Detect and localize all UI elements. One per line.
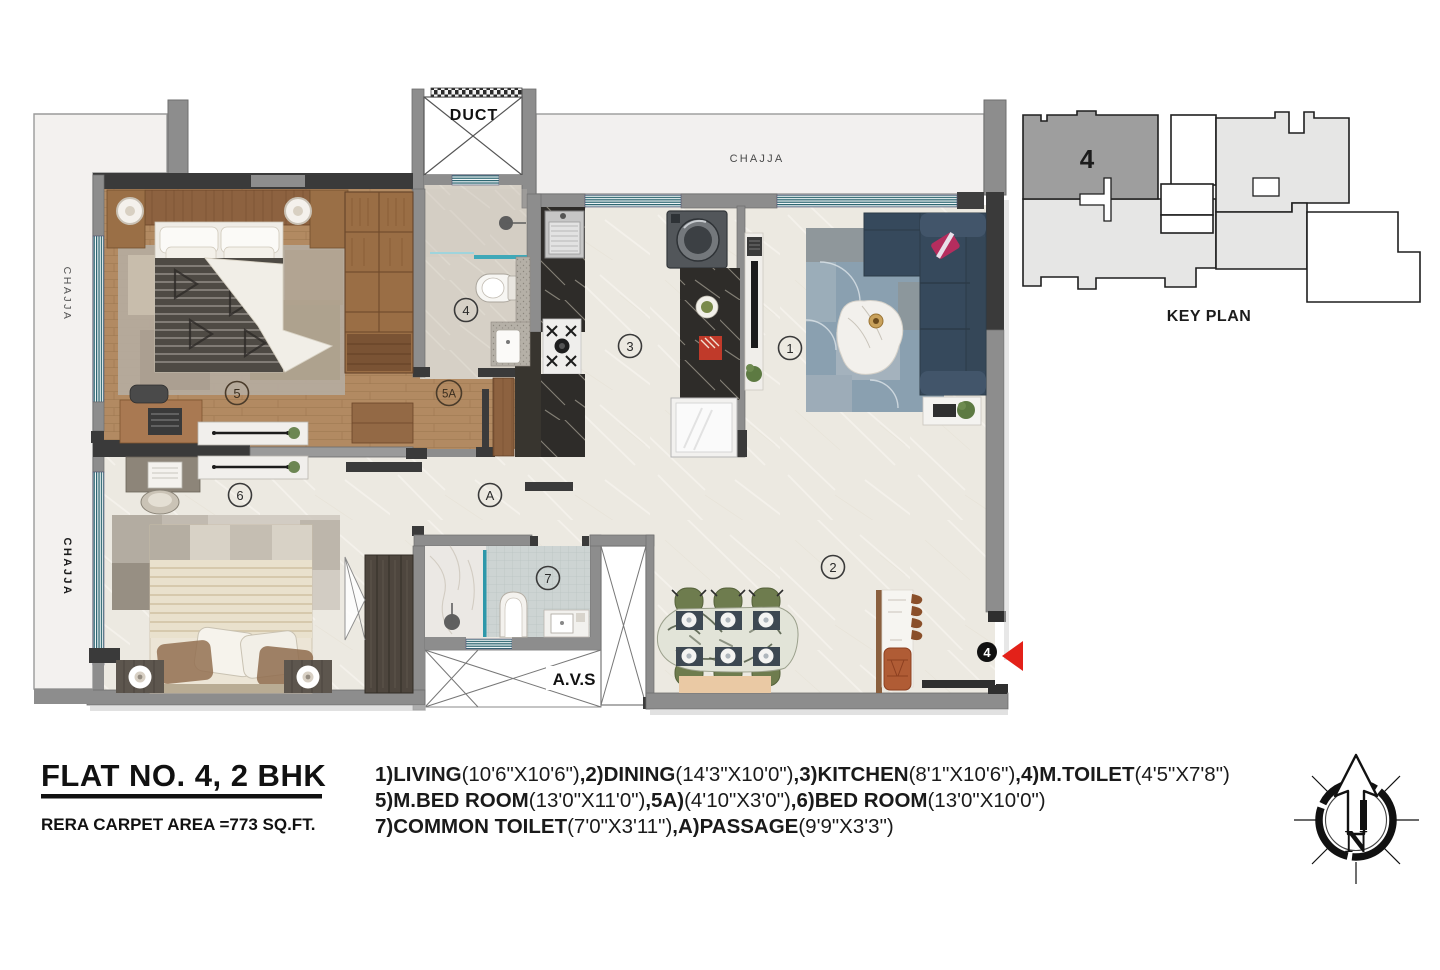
svg-text:4: 4 xyxy=(462,303,469,318)
svg-text:DUCT: DUCT xyxy=(450,107,498,124)
svg-text:CHAJJA: CHAJJA xyxy=(730,153,785,165)
svg-text:N: N xyxy=(1344,823,1367,859)
svg-text:4: 4 xyxy=(983,645,991,660)
svg-text:6: 6 xyxy=(236,488,243,503)
svg-text:7: 7 xyxy=(544,571,551,586)
svg-text:1)LIVING(10'6"X10'6"),2)DINING: 1)LIVING(10'6"X10'6"),2)DINING(14'3"X10'… xyxy=(375,763,1230,786)
svg-text:5: 5 xyxy=(233,386,240,401)
svg-text:2: 2 xyxy=(829,560,836,575)
svg-text:3: 3 xyxy=(626,339,633,354)
svg-text:5A: 5A xyxy=(442,389,456,401)
svg-text:CHAJJA: CHAJJA xyxy=(61,537,73,596)
svg-text:5)M.BED ROOM(13'0"X11'0"),5A)(: 5)M.BED ROOM(13'0"X11'0"),5A)(4'10"X3'0"… xyxy=(375,789,1046,812)
svg-text:FLAT NO. 4, 2 BHK: FLAT NO. 4, 2 BHK xyxy=(41,758,326,793)
svg-text:A: A xyxy=(486,488,495,503)
svg-text:7)COMMON TOILET(7'0"X3'11"),A): 7)COMMON TOILET(7'0"X3'11"),A)PASSAGE(9'… xyxy=(375,815,894,838)
svg-text:KEY PLAN: KEY PLAN xyxy=(1167,308,1252,325)
svg-text:RERA CARPET AREA =773 SQ.FT.: RERA CARPET AREA =773 SQ.FT. xyxy=(41,815,315,834)
svg-text:A.V.S: A.V.S xyxy=(553,670,596,689)
svg-text:4: 4 xyxy=(1080,144,1095,174)
svg-text:1: 1 xyxy=(786,341,793,356)
svg-text:CHAJJA: CHAJJA xyxy=(61,267,73,322)
